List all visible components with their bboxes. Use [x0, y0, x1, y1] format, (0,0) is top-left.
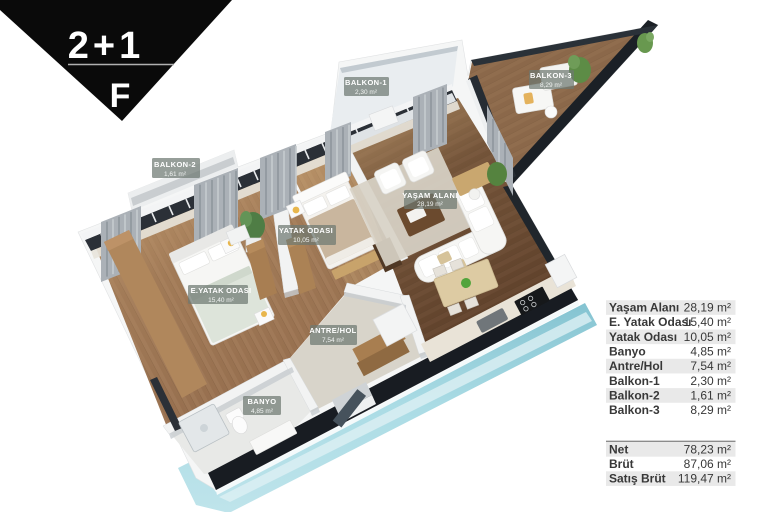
svg-text:7,54 m²: 7,54 m² — [690, 359, 731, 373]
svg-text:YAŞAM ALANI: YAŞAM ALANI — [402, 191, 458, 200]
svg-text:4,85 m²: 4,85 m² — [690, 345, 731, 359]
svg-text:Brüt: Brüt — [609, 457, 634, 471]
svg-text:15,40 m²: 15,40 m² — [208, 297, 234, 304]
svg-text:1,61 m²: 1,61 m² — [164, 171, 187, 178]
svg-text:2,30 m²: 2,30 m² — [690, 374, 731, 388]
svg-text:8,29 m²: 8,29 m² — [690, 403, 731, 417]
svg-text:BALKON-3: BALKON-3 — [530, 71, 572, 80]
svg-text:BANYO: BANYO — [247, 397, 276, 406]
svg-text:E.YATAK ODASI: E.YATAK ODASI — [191, 286, 252, 295]
svg-text:28,19 m²: 28,19 m² — [417, 201, 443, 208]
svg-text:10,05 m²: 10,05 m² — [293, 237, 319, 244]
svg-text:BALKON-1: BALKON-1 — [345, 78, 387, 87]
svg-text:4,85 m²: 4,85 m² — [251, 408, 274, 415]
svg-text:2+1: 2+1 — [68, 25, 144, 67]
svg-text:Net: Net — [609, 442, 628, 456]
svg-text:Balkon-3: Balkon-3 — [609, 403, 660, 417]
svg-text:78,23 m²: 78,23 m² — [684, 442, 731, 456]
svg-text:BALKON-2: BALKON-2 — [154, 160, 196, 169]
svg-text:Satış Brüt: Satış Brüt — [609, 472, 666, 486]
svg-text:Balkon-2: Balkon-2 — [609, 388, 660, 402]
svg-text:Antre/Hol: Antre/Hol — [609, 359, 663, 373]
svg-text:YATAK ODASI: YATAK ODASI — [279, 226, 333, 235]
svg-text:1,61 m²: 1,61 m² — [690, 388, 731, 402]
svg-text:2,30 m²: 2,30 m² — [355, 89, 378, 96]
svg-text:87,06 m²: 87,06 m² — [684, 457, 731, 471]
svg-text:10,05 m²: 10,05 m² — [684, 330, 731, 344]
svg-text:119,47 m²: 119,47 m² — [678, 472, 731, 486]
svg-text:15,40 m²: 15,40 m² — [684, 315, 731, 329]
svg-text:ANTRE/HOL: ANTRE/HOL — [309, 326, 356, 335]
svg-text:Balkon-1: Balkon-1 — [609, 374, 660, 388]
svg-text:F: F — [110, 77, 131, 115]
svg-text:28,19 m²: 28,19 m² — [684, 301, 731, 315]
svg-text:7,54 m²: 7,54 m² — [322, 337, 345, 344]
svg-text:Banyo: Banyo — [609, 345, 646, 359]
svg-text:E. Yatak Odası: E. Yatak Odası — [609, 315, 692, 329]
svg-text:Yatak Odası: Yatak Odası — [609, 330, 677, 344]
svg-text:8,29 m²: 8,29 m² — [540, 82, 563, 89]
svg-text:Yaşam Alanı: Yaşam Alanı — [609, 301, 679, 315]
